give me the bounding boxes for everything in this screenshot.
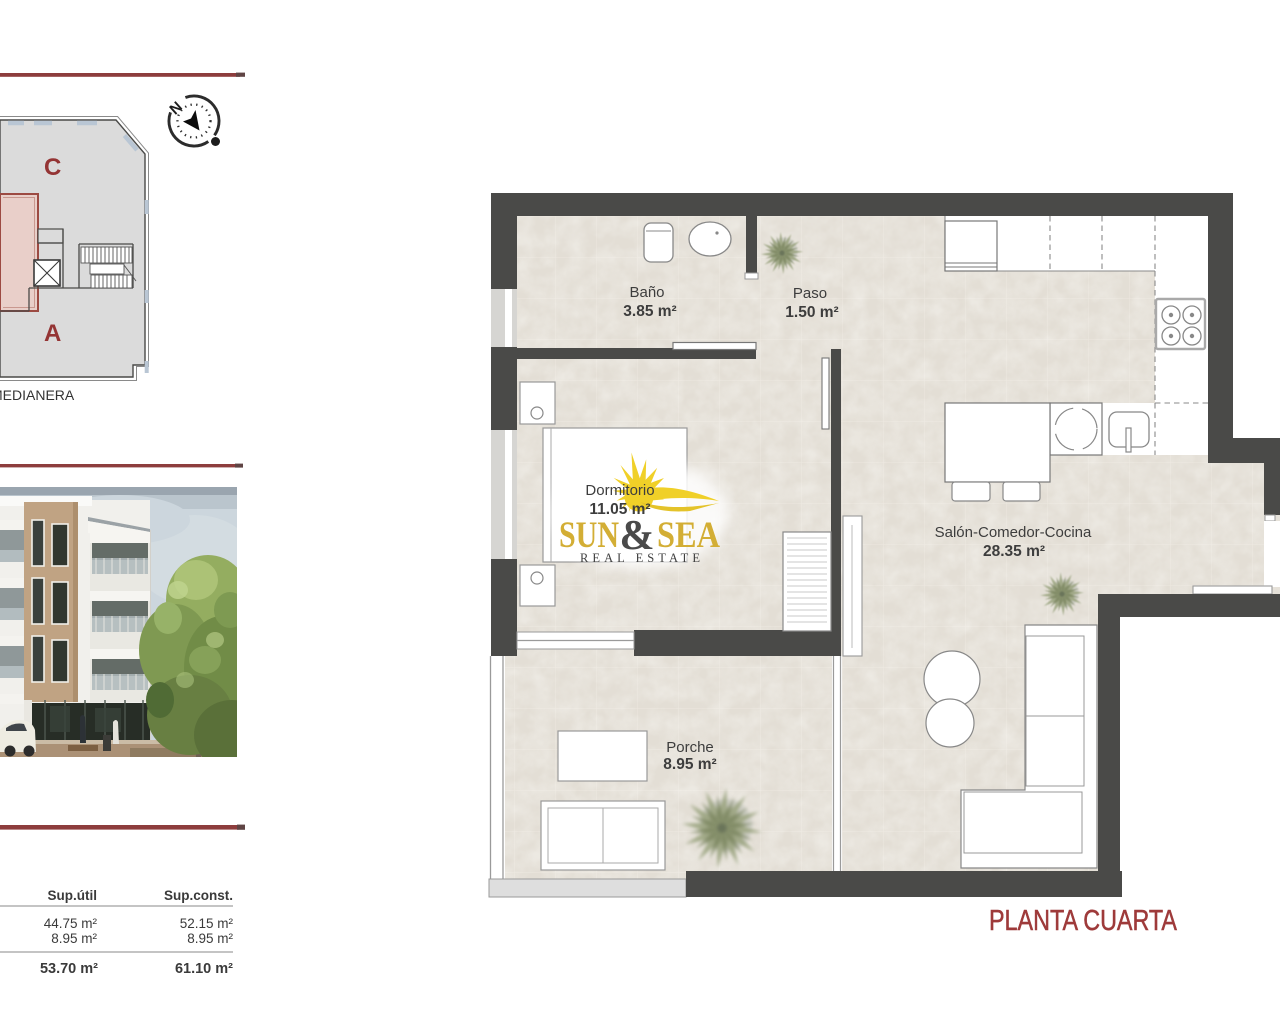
- svg-text:Porche: Porche: [666, 739, 714, 756]
- svg-text:11.05 m²: 11.05 m²: [589, 501, 650, 518]
- svg-text:8.95 m²: 8.95 m²: [187, 931, 233, 946]
- svg-text:28.35 m²: 28.35 m²: [983, 543, 1045, 560]
- svg-text:Dormitorio: Dormitorio: [585, 482, 654, 499]
- svg-text:52.15 m²: 52.15 m²: [180, 916, 234, 931]
- svg-text:REAL ESTATE: REAL ESTATE: [580, 551, 700, 565]
- svg-text:A: A: [44, 320, 61, 347]
- svg-text:Baño: Baño: [629, 284, 664, 301]
- svg-text:44.75 m²: 44.75 m²: [44, 916, 98, 931]
- svg-text:1.50 m²: 1.50 m²: [785, 304, 838, 321]
- svg-text:C: C: [44, 154, 61, 181]
- svg-text:Sup.útil: Sup.útil: [48, 888, 98, 903]
- svg-text:Sup.const.: Sup.const.: [164, 888, 233, 903]
- svg-text:Paso: Paso: [793, 285, 827, 302]
- svg-text:MEDIANERA: MEDIANERA: [0, 387, 75, 403]
- svg-text:8.95 m²: 8.95 m²: [663, 756, 716, 773]
- svg-text:SUN: SUN: [559, 515, 619, 556]
- svg-text:53.70 m²: 53.70 m²: [40, 961, 98, 977]
- svg-text:PLANTA CUARTA: PLANTA CUARTA: [989, 905, 1178, 937]
- svg-text:SEA: SEA: [657, 515, 720, 556]
- svg-text:61.10 m²: 61.10 m²: [175, 961, 233, 977]
- svg-text:3.85 m²: 3.85 m²: [623, 303, 676, 320]
- svg-text:8.95 m²: 8.95 m²: [51, 931, 97, 946]
- svg-text:Salón-Comedor-Cocina: Salón-Comedor-Cocina: [935, 524, 1092, 541]
